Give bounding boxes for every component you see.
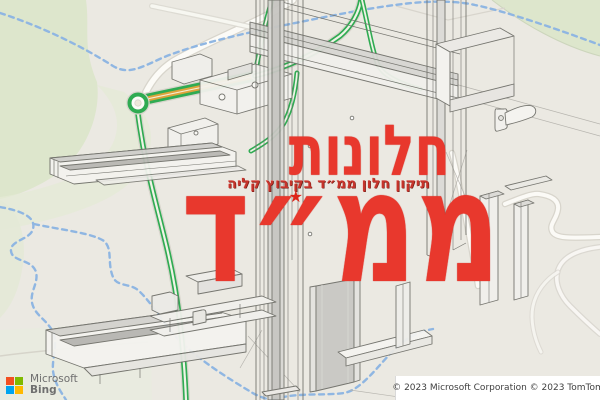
ms-tile-blue	[6, 386, 14, 394]
microsoft-logo-icon	[6, 377, 23, 394]
bing-label: Bing	[30, 385, 78, 396]
bing-logo-text: Microsoft Bing	[30, 374, 78, 396]
attribution-text: © 2023 Microsoft Corporation © 2023 TomT…	[392, 383, 600, 393]
watermark-big-word: ממ״ד	[181, 150, 500, 305]
ms-tile-green	[15, 377, 23, 385]
attribution-bar: © 2023 Microsoft Corporation © 2023 TomT…	[395, 376, 600, 400]
ms-tile-yellow	[15, 386, 23, 394]
roundabout	[127, 92, 149, 114]
ms-tile-red	[6, 377, 14, 385]
bing-map-canvas[interactable]: חלונות תיקון חלון ממ״ד בקיבוץ קליה ★ ממ״…	[0, 0, 600, 400]
bing-logo[interactable]: Microsoft Bing	[6, 374, 78, 396]
